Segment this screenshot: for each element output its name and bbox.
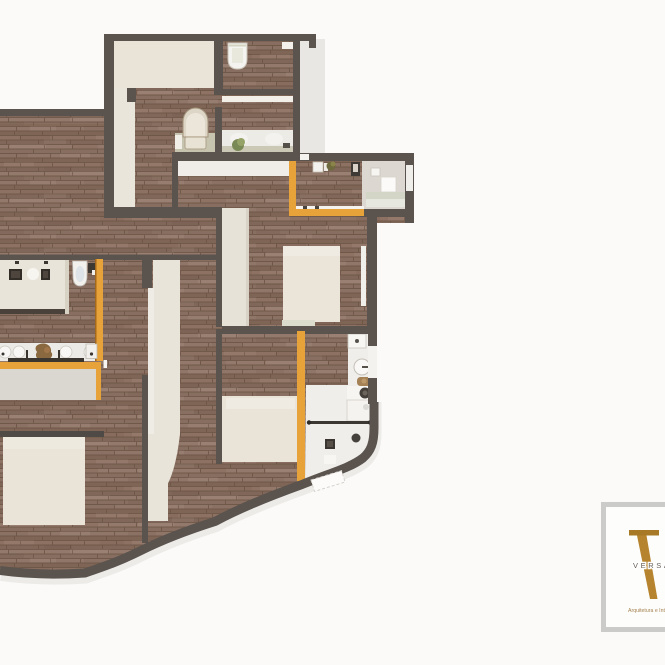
svg-text:VERSAT: VERSAT — [633, 561, 665, 570]
svg-text:Arquitetura e Interiores: Arquitetura e Interiores — [628, 608, 665, 614]
